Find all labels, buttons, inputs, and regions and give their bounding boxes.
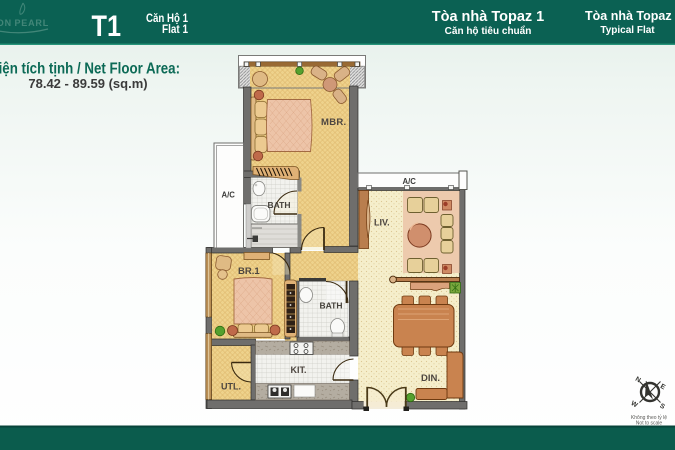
- svg-text:W: W: [629, 400, 639, 410]
- svg-text:KIT.: KIT.: [291, 365, 307, 375]
- svg-text:Typical Flat: Typical Flat: [600, 25, 655, 36]
- svg-text:UTL.: UTL.: [221, 382, 241, 392]
- svg-text:Flat 1: Flat 1: [162, 24, 189, 36]
- svg-text:Tòa nhà Topaz 2: Tòa nhà Topaz 2: [585, 9, 675, 23]
- svg-text:BR.1: BR.1: [238, 266, 260, 277]
- svg-text:S: S: [658, 403, 666, 412]
- svg-text:A/C: A/C: [403, 177, 417, 186]
- svg-text:MBR.: MBR.: [321, 117, 346, 128]
- svg-text:T1: T1: [92, 10, 122, 43]
- svg-text:DIN.: DIN.: [421, 373, 440, 384]
- svg-text:BATH: BATH: [320, 301, 343, 311]
- svg-text:Tòa nhà Topaz 1: Tòa nhà Topaz 1: [432, 9, 545, 25]
- svg-text:Diện tích tịnh / Net Floor Are: Diện tích tịnh / Net Floor Area:: [0, 61, 180, 78]
- svg-text:78.42 - 89.59 (sq.m): 78.42 - 89.59 (sq.m): [28, 76, 147, 91]
- svg-text:LIV.: LIV.: [374, 218, 390, 228]
- svg-text:BATH: BATH: [268, 200, 291, 210]
- svg-text:A/C: A/C: [222, 191, 236, 200]
- svg-text:GON PEARL: GON PEARL: [0, 18, 49, 28]
- svg-text:Căn hộ tiêu chuẩn: Căn hộ tiêu chuẩn: [445, 25, 532, 37]
